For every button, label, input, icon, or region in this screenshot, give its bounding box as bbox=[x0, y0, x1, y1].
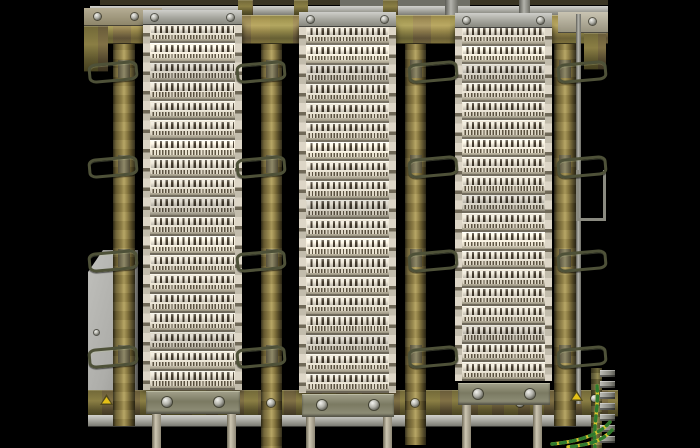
column-rail-left bbox=[143, 24, 150, 390]
terminal-module bbox=[462, 83, 545, 100]
terminal-module bbox=[306, 219, 389, 236]
terminal-module bbox=[306, 123, 389, 140]
earth-wires bbox=[540, 378, 700, 448]
cable-guide-loop bbox=[235, 345, 287, 369]
terminal-module bbox=[150, 43, 235, 60]
terminal-module bbox=[462, 344, 545, 361]
column-bottom-bracket bbox=[146, 391, 240, 414]
terminal-module bbox=[462, 157, 545, 174]
cable-guide-loop bbox=[556, 249, 608, 273]
terminal-module bbox=[462, 251, 545, 268]
terminal-module bbox=[306, 181, 389, 198]
cable-guide-loop bbox=[556, 345, 608, 369]
terminal-module bbox=[150, 217, 235, 234]
terminal-module bbox=[150, 197, 235, 214]
screw bbox=[589, 18, 596, 25]
mounting-leg bbox=[462, 405, 471, 448]
column-bottom-bracket bbox=[458, 383, 550, 405]
hex-screw bbox=[525, 389, 535, 399]
mounting-leg bbox=[306, 417, 315, 448]
terminal-module bbox=[306, 354, 389, 371]
plate-screw bbox=[94, 330, 99, 335]
screw bbox=[463, 17, 470, 24]
terminal-module bbox=[306, 103, 389, 120]
earth-clamp bbox=[600, 370, 615, 377]
terminal-module bbox=[462, 46, 545, 63]
terminal-module bbox=[150, 82, 235, 99]
terminal-module bbox=[306, 26, 389, 43]
column-rail-left bbox=[455, 27, 462, 381]
screw bbox=[537, 17, 544, 24]
cable-guide-loop bbox=[407, 60, 459, 84]
terminal-module bbox=[306, 45, 389, 62]
terminal-module bbox=[462, 288, 545, 305]
terminal-module bbox=[150, 294, 235, 311]
terminal-module bbox=[462, 120, 545, 137]
terminal-module bbox=[462, 213, 545, 230]
screw bbox=[227, 14, 234, 21]
hex-screw bbox=[162, 397, 172, 407]
screw bbox=[307, 16, 314, 23]
distribution-frame-photo bbox=[0, 0, 700, 448]
screw bbox=[151, 14, 158, 21]
cable-guide-loop bbox=[407, 155, 459, 179]
terminal-column bbox=[143, 24, 242, 390]
hex-screw bbox=[369, 400, 379, 410]
terminal-module bbox=[306, 296, 389, 313]
terminal-module bbox=[306, 142, 389, 159]
column-bottom-bracket bbox=[302, 394, 394, 417]
column-rail-right bbox=[545, 27, 552, 381]
mounting-leg bbox=[383, 417, 392, 448]
terminal-module bbox=[462, 102, 545, 119]
right-hanger-bracket bbox=[576, 170, 606, 221]
terminal-module bbox=[462, 269, 545, 286]
terminal-column bbox=[299, 26, 396, 393]
cable-guide-loop bbox=[407, 249, 459, 273]
terminal-module bbox=[150, 140, 235, 157]
terminal-module bbox=[462, 306, 545, 323]
terminal-module bbox=[150, 255, 235, 272]
terminal-module bbox=[462, 64, 545, 81]
terminal-module bbox=[462, 139, 545, 156]
terminal-module bbox=[462, 325, 545, 342]
terminal-module bbox=[150, 236, 235, 253]
terminal-module bbox=[150, 159, 235, 176]
screw bbox=[381, 16, 388, 23]
terminal-module bbox=[462, 176, 545, 193]
terminal-module bbox=[150, 332, 235, 349]
terminal-module bbox=[462, 27, 545, 44]
terminal-module bbox=[306, 335, 389, 352]
terminal-module bbox=[462, 362, 545, 379]
terminal-module bbox=[306, 238, 389, 255]
column-rail-right bbox=[389, 26, 396, 393]
cable-guide-loop bbox=[407, 345, 459, 369]
cable-guide-loop bbox=[235, 155, 287, 179]
earth-wire bbox=[540, 378, 700, 448]
terminal-module bbox=[150, 313, 235, 330]
terminal-module bbox=[306, 84, 389, 101]
rail-screw bbox=[411, 399, 419, 407]
right-end-cap bbox=[558, 12, 608, 33]
mounting-leg bbox=[152, 414, 161, 448]
terminal-module bbox=[306, 258, 389, 275]
terminal-column bbox=[455, 27, 552, 381]
column-rail-left bbox=[299, 26, 306, 393]
terminal-module bbox=[306, 277, 389, 294]
terminal-module bbox=[306, 374, 389, 391]
screw bbox=[94, 13, 101, 20]
terminal-module bbox=[150, 274, 235, 291]
terminal-module bbox=[462, 195, 545, 212]
rail-screw bbox=[267, 399, 275, 407]
cable-guide-loop bbox=[556, 60, 608, 84]
mounting-leg bbox=[227, 414, 236, 448]
screw bbox=[131, 13, 138, 20]
terminal-module bbox=[150, 120, 235, 137]
terminal-module bbox=[150, 351, 235, 368]
terminal-module bbox=[306, 65, 389, 82]
terminal-module bbox=[462, 232, 545, 249]
terminal-module bbox=[306, 161, 389, 178]
terminal-module bbox=[150, 63, 235, 80]
terminal-module bbox=[150, 371, 235, 388]
cable-guide-loop bbox=[235, 249, 287, 273]
terminal-module bbox=[150, 178, 235, 195]
terminal-module bbox=[306, 316, 389, 333]
terminal-module bbox=[150, 101, 235, 118]
terminal-module bbox=[150, 24, 235, 41]
cable-guide-loop bbox=[235, 60, 287, 84]
terminal-module bbox=[306, 200, 389, 217]
